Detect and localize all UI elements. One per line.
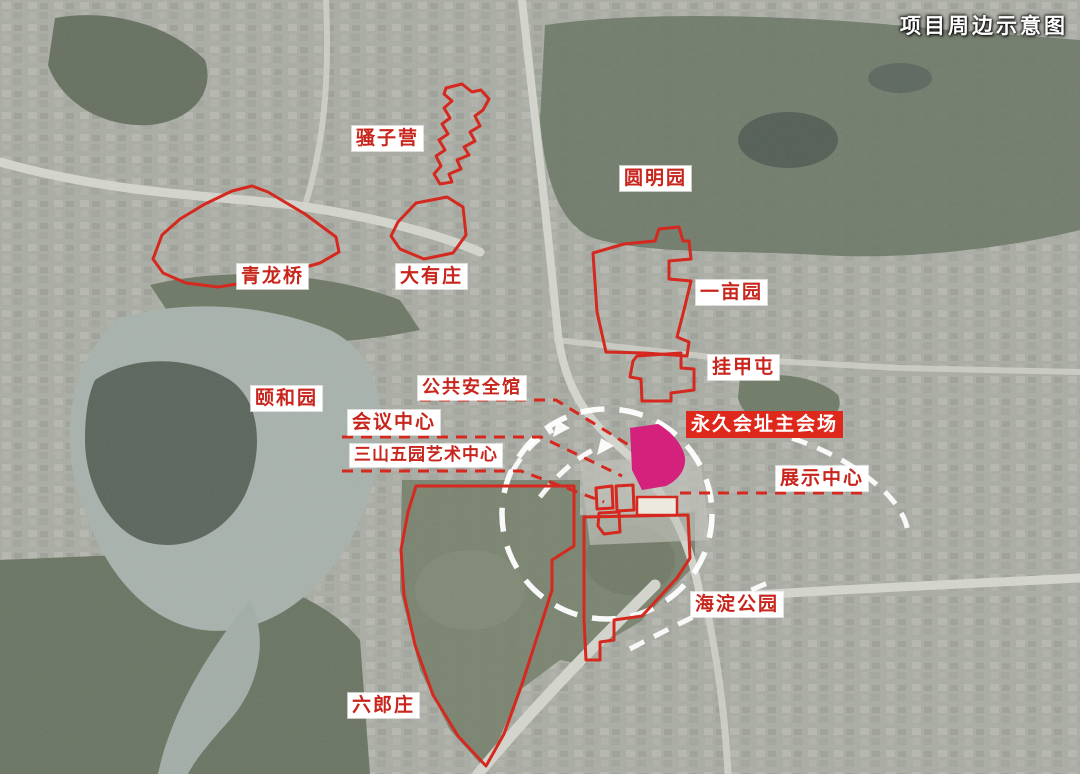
label-qinglongqiao: 青龙桥	[237, 264, 308, 289]
label-haidian-park: 海淀公园	[691, 592, 783, 617]
label-yimuyuan: 一亩园	[696, 280, 767, 305]
site-context-map: 项目周边示意图 骚子营 圆明园 青龙桥 大有庄 一亩园 挂甲屯 颐和园 公共安全…	[0, 0, 1080, 774]
label-yiheyuan: 颐和园	[251, 386, 322, 411]
label-conference-center: 会议中心	[348, 410, 440, 435]
label-liulangzhuang: 六郎庄	[348, 693, 419, 718]
label-guajiatun: 挂甲屯	[708, 355, 779, 380]
basemap-grain	[0, 0, 1080, 774]
exhibition-center-building	[637, 497, 677, 515]
label-dayouzhuang: 大有庄	[396, 264, 467, 289]
satellite-basemap	[0, 0, 1080, 774]
label-public-safety-hall: 公共安全馆	[418, 376, 526, 400]
label-saoziying: 骚子营	[352, 126, 423, 151]
label-three-hills-five-gardens-art-center: 三山五园艺术中心	[350, 444, 502, 467]
label-exhibition-center: 展示中心	[776, 466, 868, 491]
label-permanent-venue-main-hall: 永久会址主会场	[686, 411, 843, 438]
label-yuanmingyuan: 圆明园	[620, 166, 691, 191]
map-title: 项目周边示意图	[900, 10, 1068, 40]
